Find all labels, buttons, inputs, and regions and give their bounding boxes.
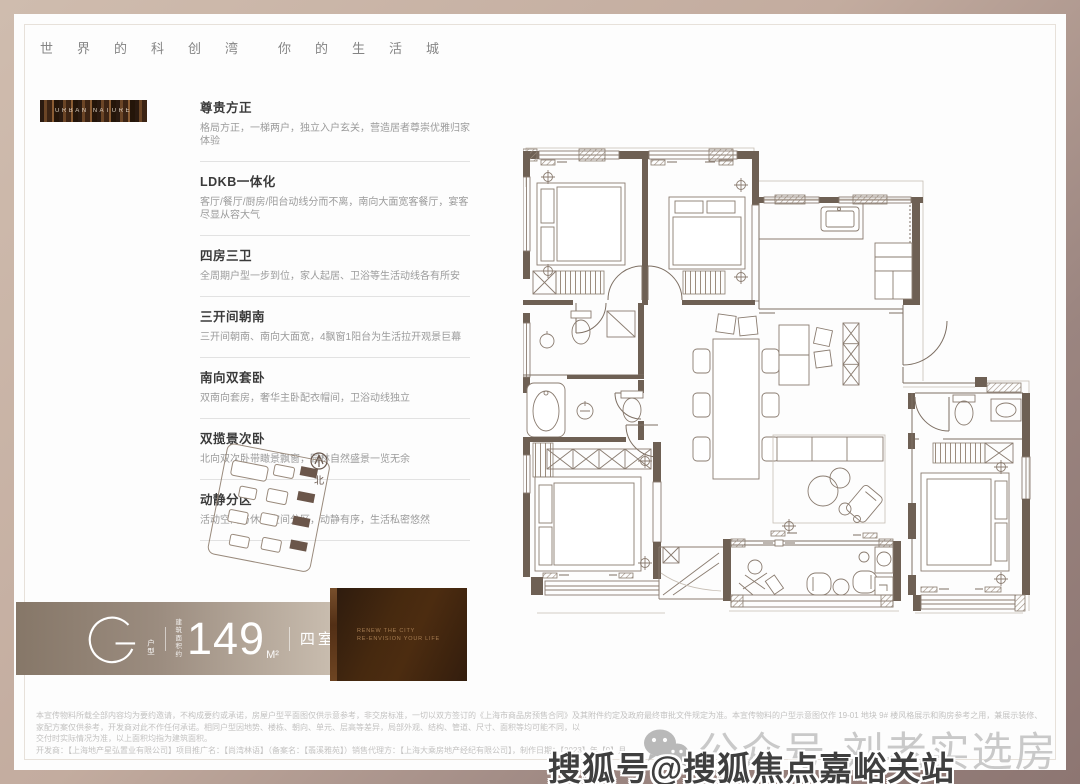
area-value: 149 (187, 616, 265, 661)
slogan-right: 你的生活城 (278, 41, 463, 56)
feature-item: LDKB一体化 客厅/餐厅/厨房/阳台动线分而不离，南向大面宽客餐厅，宴客尽显从… (200, 162, 470, 236)
promo-text: RENEW THE CITY RE-ENVISION YOUR LIFE (357, 627, 440, 643)
unit-letter-g (80, 607, 144, 671)
brand-badge-image: URBAN NATURE (40, 100, 147, 122)
feature-item: 南向双套卧 双南向套房，奢华主卧配衣帽间，卫浴动线独立 (200, 358, 470, 419)
area-unit: M² (266, 649, 279, 661)
site-plan: 北 (198, 428, 358, 593)
slogan-left: 世界的科创湾 (40, 41, 262, 56)
divider (165, 627, 166, 651)
feature-desc: 双南向套房，奢华主卧配衣帽间，卫浴动线独立 (200, 392, 470, 405)
feature-item: 尊贵方正 格局方正，一梯两户，独立入户玄关，营造居者尊崇优雅归家体验 (200, 88, 470, 162)
feature-item: 四房三卫 全周期户型一步到位，家人起居、卫浴等生活动线各有所安 (200, 236, 470, 297)
feature-desc: 三开间朝南、南向大面宽，4飘窗1阳台为生活拉开观景巨幕 (200, 331, 470, 344)
brand-badge-label: URBAN NATURE (55, 108, 132, 114)
unit-info-bar: 户型 建筑 面积约 149 M² 四室两厅三卫 (16, 602, 330, 675)
feature-title: 南向双套卧 (200, 367, 470, 386)
promo-spine (330, 588, 337, 681)
feature-title: 四房三卫 (200, 245, 470, 264)
divider (289, 627, 290, 651)
floor-plan (523, 143, 1035, 628)
feature-desc: 格局方正，一梯两户，独立入户玄关，营造居者尊崇优雅归家体验 (200, 122, 470, 148)
feature-title: LDKB一体化 (200, 171, 470, 190)
header-slogan: 世界的科创湾你的生活城 (40, 38, 463, 57)
sohu-watermark-text: 搜狐号@搜狐焦点嘉峪关站 (548, 742, 955, 784)
north-arrow-icon (311, 453, 327, 469)
feature-item: 三开间朝南 三开间朝南、南向大面宽，4飘窗1阳台为生活拉开观景巨幕 (200, 297, 470, 358)
feature-title: 三开间朝南 (200, 306, 470, 325)
area-label: 建筑 面积约 (176, 619, 184, 659)
unit-letter-sub: 户型 (146, 639, 155, 656)
promo-image: RENEW THE CITY RE-ENVISION YOUR LIFE (330, 588, 467, 681)
feature-desc: 客厅/餐厅/厨房/阳台动线分而不离，南向大面宽客餐厅，宴客尽显从容大气 (200, 196, 470, 222)
feature-title: 尊贵方正 (200, 97, 470, 116)
north-label: 北 (314, 475, 324, 487)
brochure-page: 世界的科创湾你的生活城 URBAN NATURE 尊贵方正 格局方正，一梯两户，… (0, 0, 1080, 784)
feature-desc: 全周期户型一步到位，家人起居、卫浴等生活动线各有所安 (200, 270, 470, 283)
